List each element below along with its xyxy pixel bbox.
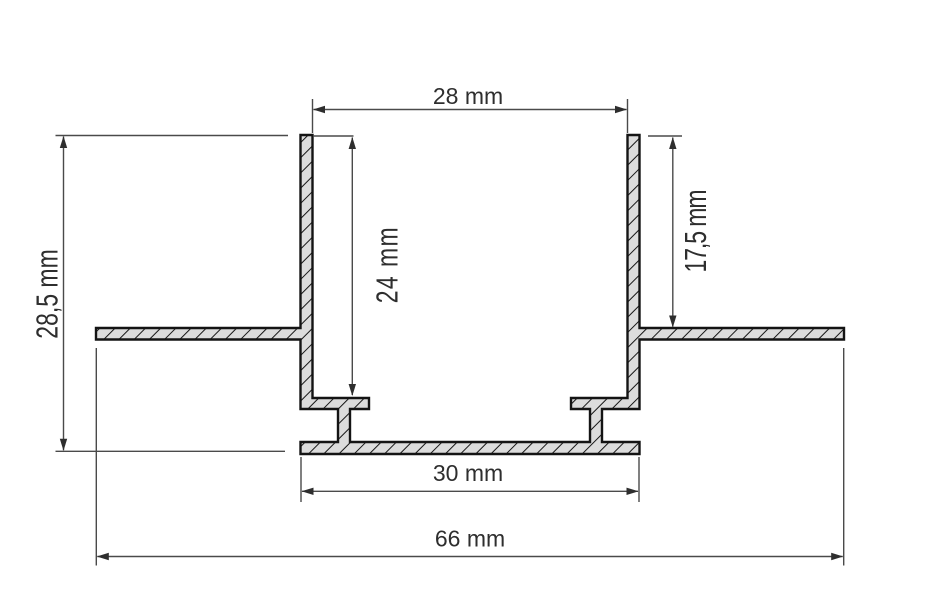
svg-text:28 mm: 28 mm [433,83,503,109]
svg-text:66 mm: 66 mm [435,526,505,552]
svg-text:30 mm: 30 mm [433,460,503,486]
svg-text:24 mm: 24 mm [369,227,404,303]
svg-text:17,5 mm: 17,5 mm [678,190,713,273]
svg-text:28,5 mm: 28,5 mm [29,249,64,338]
